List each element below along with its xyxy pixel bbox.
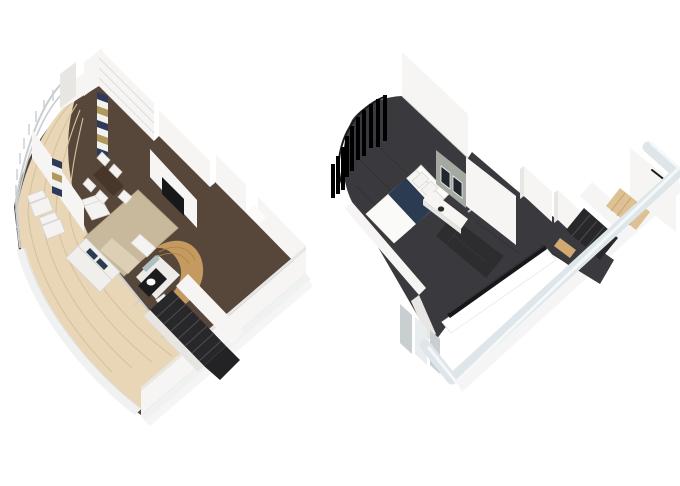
upper-level-plan — [331, 52, 680, 392]
striped-curtain-divider — [52, 158, 62, 197]
sink — [438, 206, 444, 211]
striped-curtain — [97, 92, 108, 159]
floorplan-canvas — [0, 0, 680, 486]
lower-level-plan — [14, 48, 313, 426]
loft-suite-3d-floorplan — [0, 0, 680, 486]
sink — [147, 279, 156, 286]
